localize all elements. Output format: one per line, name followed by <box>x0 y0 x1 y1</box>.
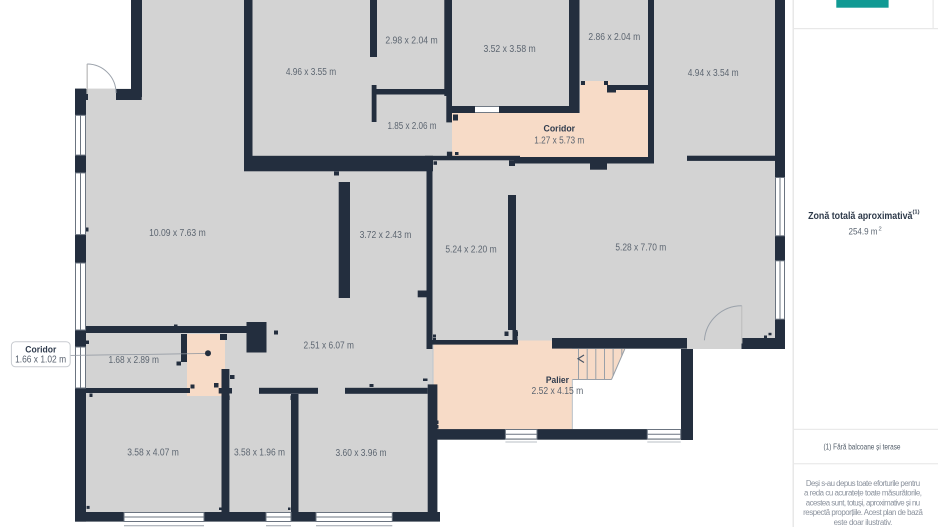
svg-text:254.9 m: 254.9 m <box>849 226 878 236</box>
svg-text:(1) Fără balcoane și terase: (1) Fără balcoane și terase <box>824 441 901 451</box>
svg-text:4.96 x 3.55 m: 4.96 x 3.55 m <box>286 67 336 78</box>
svg-text:1.85 x 2.06 m: 1.85 x 2.06 m <box>388 121 437 132</box>
svg-text:10.09 x 7.63 m: 10.09 x 7.63 m <box>149 228 206 239</box>
svg-text:Zonă totală aproximativă: Zonă totală aproximativă <box>808 211 913 222</box>
svg-text:1.27 x 5.73 m: 1.27 x 5.73 m <box>534 135 584 146</box>
svg-text:2.51 x 6.07 m: 2.51 x 6.07 m <box>304 341 354 352</box>
svg-text:Coridor: Coridor <box>25 344 56 354</box>
svg-text:5.28 x 7.70 m: 5.28 x 7.70 m <box>615 243 666 254</box>
svg-text:3.72 x 2.43 m: 3.72 x 2.43 m <box>360 230 412 241</box>
svg-text:1.66 x 1.02 m: 1.66 x 1.02 m <box>15 354 66 365</box>
svg-text:3.60 x 3.96 m: 3.60 x 3.96 m <box>336 448 387 459</box>
svg-text:1.68 x 2.89 m: 1.68 x 2.89 m <box>108 355 159 366</box>
svg-text:a reda cu acuratețe toate măsu: a reda cu acuratețe toate măsurătorile, <box>804 489 922 498</box>
svg-text:Deși s-au depus toate eforturi: Deși s-au depus toate eforturile pentru <box>806 479 920 488</box>
svg-text:2.86 x 2.04 m: 2.86 x 2.04 m <box>588 32 640 43</box>
svg-text:2: 2 <box>879 227 882 233</box>
svg-text:acestea sunt, totuși, aproxima: acestea sunt, totuși, aproximative și nu <box>806 498 920 507</box>
svg-text:este doar ilustrativ.: este doar ilustrativ. <box>834 518 893 527</box>
svg-text:(1): (1) <box>913 210 920 216</box>
svg-text:4.94 x 3.54 m: 4.94 x 3.54 m <box>688 68 739 79</box>
svg-text:respectă proporțiile. Acest pl: respectă proporțiile. Acest plan de bază <box>803 508 923 517</box>
svg-text:3.52 x 3.58 m: 3.52 x 3.58 m <box>483 44 535 55</box>
svg-text:3.58 x 1.96 m: 3.58 x 1.96 m <box>234 448 285 459</box>
svg-text:5.24 x 2.20 m: 5.24 x 2.20 m <box>445 244 496 255</box>
svg-text:2.52 x 4.15 m: 2.52 x 4.15 m <box>532 386 584 397</box>
svg-text:2.98 x 2.04 m: 2.98 x 2.04 m <box>385 35 437 46</box>
svg-text:Palier: Palier <box>546 375 569 385</box>
svg-text:3.58 x 4.07 m: 3.58 x 4.07 m <box>127 448 179 459</box>
svg-text:Coridor: Coridor <box>544 124 576 134</box>
